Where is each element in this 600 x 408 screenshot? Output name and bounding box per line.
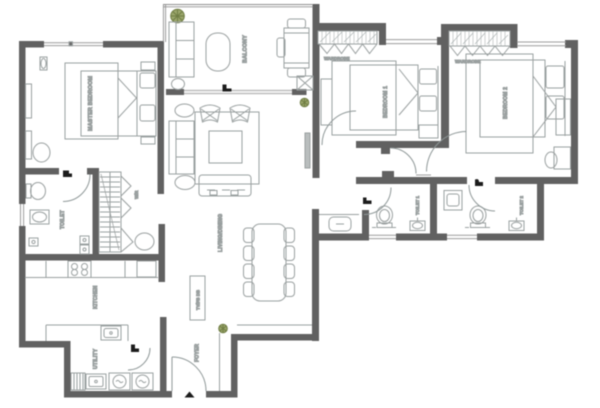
svg-text:TOILET: TOILET	[60, 210, 66, 229]
svg-text:MASTER BEDROOM: MASTER BEDROOM	[88, 75, 94, 131]
svg-text:KITCHEN: KITCHEN	[93, 285, 99, 309]
svg-text:BEDROOM 1: BEDROOM 1	[383, 86, 389, 118]
svg-text:TOILET 1: TOILET 1	[415, 195, 420, 215]
svg-text:FOYER: FOYER	[195, 344, 201, 362]
svg-text:BEDROOM 2: BEDROOM 2	[503, 87, 509, 119]
svg-text:TOILET 2: TOILET 2	[519, 195, 524, 215]
svg-text:LIVING/DINING: LIVING/DINING	[218, 214, 224, 252]
svg-text:BALCONY: BALCONY	[243, 35, 249, 63]
svg-text:WARDROBE: WARDROBE	[455, 59, 481, 64]
svg-text:W/R: W/R	[134, 191, 139, 199]
svg-text:UTILITY: UTILITY	[93, 348, 99, 369]
svg-text:TV/FB DB: TV/FB DB	[196, 290, 201, 310]
svg-text:WARDROBE: WARDROBE	[324, 56, 350, 61]
